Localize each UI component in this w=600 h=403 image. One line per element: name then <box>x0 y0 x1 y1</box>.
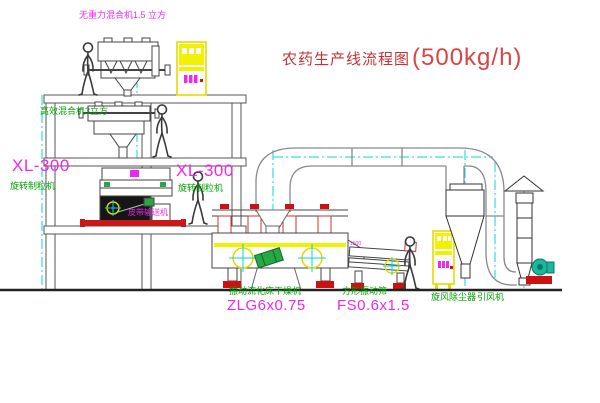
label-top-mixer: 无重力混合机1.5 立方 <box>79 11 166 20</box>
belt-conveyor-drawing <box>80 219 186 227</box>
top-mixer-drawing <box>84 38 170 96</box>
label-belt-conveyor: 皮带输送机 <box>128 209 168 217</box>
control-cabinet-1 <box>177 42 206 95</box>
label-granulator-left-model: XL-300 <box>12 157 70 174</box>
diagram-title-text: 农药生产线流程图 <box>282 48 410 69</box>
control-cabinet-2 <box>433 231 454 290</box>
label-cyclone: 旋风除尘器 <box>431 293 476 302</box>
label-dimension: 1500 <box>350 242 361 247</box>
label-fan: 引风机 <box>477 293 504 302</box>
label-granulator-right-model: XL-300 <box>176 162 234 179</box>
diagram-title: 农药生产线流程图 (500kg/h) <box>282 44 522 72</box>
label-dryer-model: ZLG6x0.75 <box>227 298 306 313</box>
label-dryer-name: 振动流化床干燥机 <box>229 287 301 296</box>
label-granulator-left-name: 旋转制粒机 <box>10 182 55 191</box>
diagram-title-capacity: (500kg/h) <box>412 44 522 72</box>
label-sieve-model: FS0.6x1.5 <box>337 298 410 313</box>
label-granulator-right-name: 旋转制粒机 <box>178 184 223 193</box>
label-mid-mixer: 高效混合机3立方 <box>40 107 108 116</box>
flow-diagram: 农药生产线流程图 (500kg/h) 无重力混合机1.5 立方 高效混合机3立方… <box>0 0 600 403</box>
label-sieve-name: 方形振动筛 <box>342 287 387 296</box>
